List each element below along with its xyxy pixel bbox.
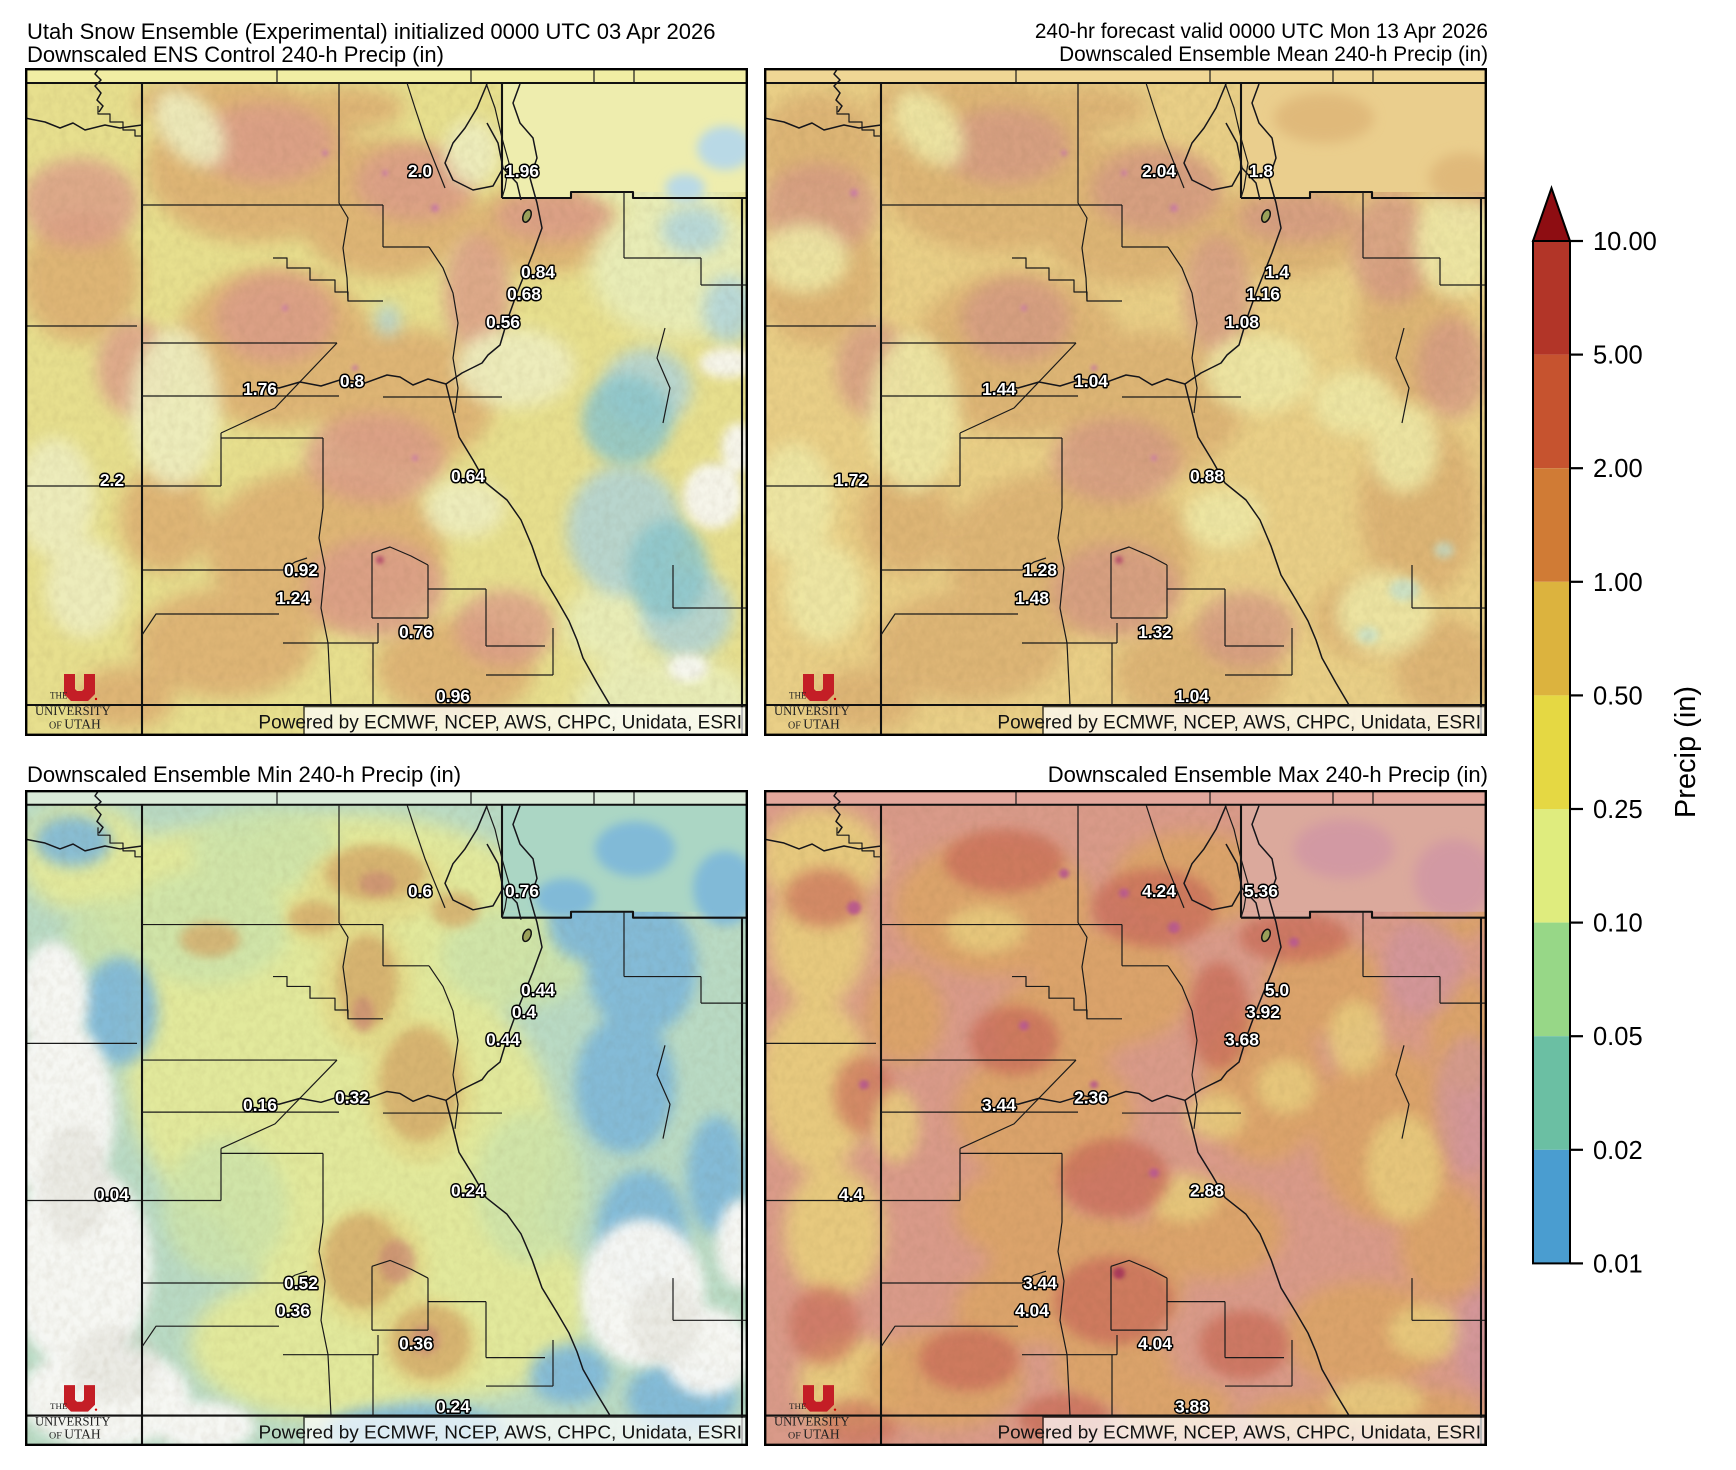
svg-text:0.10: 0.10 (1593, 910, 1643, 938)
svg-text:0.05: 0.05 (1593, 1023, 1643, 1051)
svg-text:1.00: 1.00 (1593, 569, 1643, 597)
svg-text:5.00: 5.00 (1593, 342, 1643, 370)
svg-text:0.01: 0.01 (1593, 1250, 1643, 1278)
svg-text:0.25: 0.25 (1593, 796, 1643, 824)
svg-text:0.02: 0.02 (1593, 1137, 1643, 1165)
svg-text:0.50: 0.50 (1593, 682, 1643, 710)
svg-text:10.00: 10.00 (1593, 228, 1657, 256)
svg-text:2.00: 2.00 (1593, 455, 1643, 483)
svg-text:Precip (in): Precip (in) (1670, 686, 1702, 818)
